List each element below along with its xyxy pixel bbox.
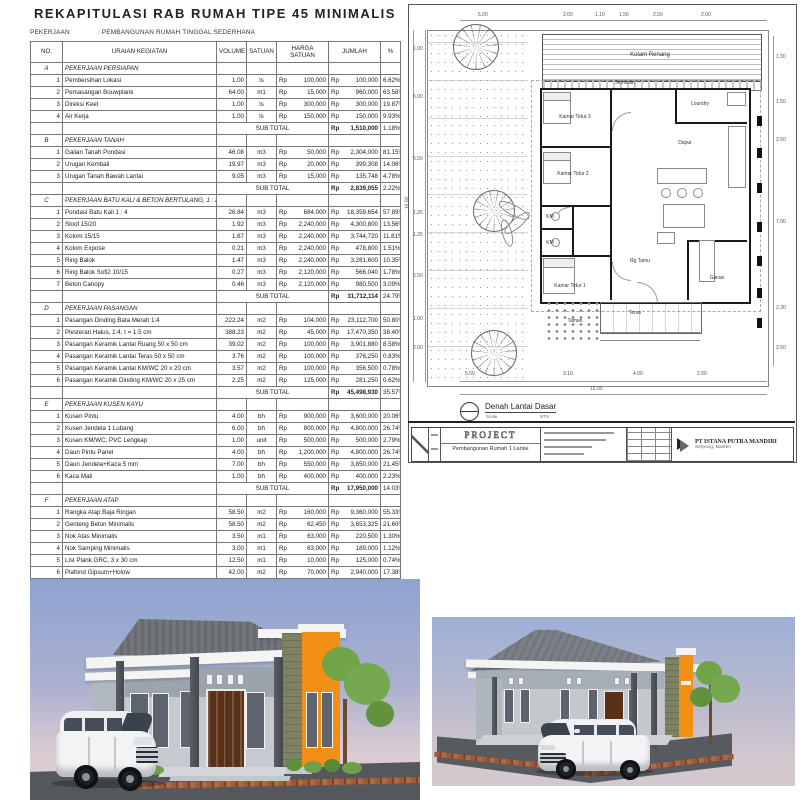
- table-cell: Rp2,240,000: [277, 231, 329, 243]
- table-cell: 7: [31, 279, 63, 291]
- item-row: 6Plafond Gipsum+Holow42.00m2Rp70,000Rp2,…: [31, 567, 401, 579]
- van-door-seam: [610, 741, 612, 769]
- table-cell: [63, 123, 217, 135]
- table-cell: 2: [31, 87, 63, 99]
- interior-wall: [687, 240, 689, 300]
- porch-column: [492, 677, 497, 737]
- table-cell: PEKERJAAN PERSIAPAN: [63, 63, 217, 75]
- table-cell: 1: [31, 315, 63, 327]
- interior-wall: [675, 122, 747, 124]
- table-cell: Rp500,000: [329, 435, 381, 447]
- item-row: 7Beton Canopy0.46m3Rp2,120,000Rp980,5003…: [31, 279, 401, 291]
- table-cell: Pasangan Keramik Lantai KM/WC 20 x 20 cm: [63, 363, 217, 375]
- interior-wall: [540, 228, 573, 230]
- table-cell: Kolom Expose: [63, 243, 217, 255]
- table-cell: SUB TOTAL: [217, 123, 329, 135]
- table-cell: [247, 195, 277, 207]
- table-cell: Rp100,000: [329, 75, 381, 87]
- column-header: VOLUME: [217, 42, 247, 63]
- item-row: 5Ring Balok1.47m3Rp2,240,000Rp3,281,6001…: [31, 255, 401, 267]
- table-cell: 3.76: [217, 351, 247, 363]
- dimension-label: 2.00: [563, 12, 573, 18]
- table-cell: 26.84: [217, 207, 247, 219]
- table-cell: bh: [247, 459, 277, 471]
- pekerjaan-value: : PEMBANGUNAN RUMAH TINGGAL SEDERHANA: [98, 29, 255, 36]
- table-cell: Plafond Gipsum+Holow: [63, 567, 217, 579]
- porch-column: [274, 657, 283, 771]
- project-title: PROJECT: [441, 430, 540, 440]
- table-cell: [31, 387, 63, 399]
- item-row: 3Nok Atas Minimalis3.50m1Rp63,000Rp220,5…: [31, 531, 401, 543]
- shrub: [304, 761, 322, 773]
- table-cell: 81.15%: [381, 147, 401, 159]
- dimension-line: [773, 36, 774, 366]
- page-title: REKAPITULASI RAB RUMAH TIPE 45 MINIMALIS: [30, 6, 400, 21]
- table-cell: D: [31, 303, 63, 315]
- table-cell: [63, 183, 217, 195]
- table-cell: 5: [31, 255, 63, 267]
- subtotal-row: SUB TOTALRp45,498,93035.57%: [31, 387, 401, 399]
- tree-foliage: [710, 675, 740, 703]
- table-cell: 1.78%: [381, 267, 401, 279]
- table-cell: [217, 303, 247, 315]
- item-row: 2Genteng Beton Minimalis58.50m2Rp62,450R…: [31, 519, 401, 531]
- armchair-symbol: [657, 232, 675, 244]
- section-header-row: EPEKERJAAN KUSEN KAYU: [31, 399, 401, 411]
- table-cell: Rp4,800,000: [329, 423, 381, 435]
- table-cell: 58.50: [217, 507, 247, 519]
- tower-cap: [676, 648, 696, 655]
- item-row: 5List Plank GRC, 3 x 30 cm12.50m1Rp10,00…: [31, 555, 401, 567]
- table-cell: [63, 483, 217, 495]
- table-cell: [381, 195, 401, 207]
- dimension-label: 2.30: [776, 305, 786, 311]
- table-cell: Rp478,800: [329, 243, 381, 255]
- table-cell: 57.89%: [381, 207, 401, 219]
- table-cell: m2: [247, 567, 277, 579]
- titleblock-info: [541, 428, 627, 461]
- table-cell: Rp2,240,000: [277, 243, 329, 255]
- dimension-line: [460, 20, 767, 21]
- item-row: 3Urugan Tanah Bawah Lantai9.05m3Rp15,000…: [31, 171, 401, 183]
- table-cell: 2: [31, 219, 63, 231]
- van-grille: [136, 747, 158, 763]
- table-cell: [217, 399, 247, 411]
- table-cell: 4: [31, 543, 63, 555]
- table-cell: Rp23,112,700: [329, 315, 381, 327]
- transom-window: [614, 677, 620, 685]
- tower-window: [321, 692, 333, 748]
- table-cell: m3: [247, 219, 277, 231]
- dimension-label: 1.10: [595, 12, 605, 18]
- table-cell: 24.79%: [381, 291, 401, 303]
- room-label-kolam-renang: Kolam Renang: [600, 52, 700, 58]
- table-cell: 3: [31, 531, 63, 543]
- window: [504, 689, 514, 723]
- total-height-dim: 16.00: [404, 197, 410, 210]
- titleblock-revisions: [627, 428, 672, 461]
- table-cell: [277, 135, 329, 147]
- table-cell: [31, 291, 63, 303]
- transom-window: [216, 674, 223, 685]
- table-cell: [247, 63, 277, 75]
- dimension-label: 1.25: [413, 210, 423, 216]
- table-cell: Rp104,000: [277, 315, 329, 327]
- table-cell: m3: [247, 231, 277, 243]
- table-cell: Rp3,653,325: [329, 519, 381, 531]
- van-headlight: [133, 737, 154, 745]
- table-cell: Pondasi Batu Kali 1 : 4: [63, 207, 217, 219]
- room-label-jemuran: Jemuran: [600, 80, 650, 86]
- tree-foliage: [344, 663, 390, 705]
- section-header-row: CPEKERJAAN BATU KALI & BETON BERTULANG, …: [31, 195, 401, 207]
- column-header: SATUAN: [247, 42, 277, 63]
- item-row: 1Rangka Atap Baja Ringan58.50m2Rp160,000…: [31, 507, 401, 519]
- table-cell: Nok Atas Minimalis: [63, 531, 217, 543]
- table-cell: unit: [247, 435, 277, 447]
- table-cell: Rp300,000: [329, 99, 381, 111]
- table-cell: [247, 303, 277, 315]
- dimension-label: 7.00: [776, 219, 786, 225]
- stool-symbol: [661, 188, 671, 198]
- table-cell: 35.57%: [381, 387, 401, 399]
- item-row: 2Kusen Jendela 1 Lubang6.00bhRp800,000Rp…: [31, 423, 401, 435]
- table-cell: Rp3,850,000: [329, 459, 381, 471]
- dimension-label: 4.00: [633, 371, 643, 377]
- van-door-seam: [582, 741, 584, 769]
- dimension-label: 1.00: [413, 46, 423, 52]
- table-cell: bh: [247, 411, 277, 423]
- table-cell: [277, 63, 329, 75]
- room-label-taman: Taman: [550, 318, 600, 324]
- dimension-label: 2.00: [413, 345, 423, 351]
- table-cell: 3: [31, 231, 63, 243]
- tree-symbol: [453, 24, 499, 70]
- table-cell: [329, 135, 381, 147]
- item-row: 3Kolom 15/151.67m3Rp2,240,000Rp3,744,720…: [31, 231, 401, 243]
- table-cell: Rp125,000: [277, 375, 329, 387]
- tower-cap: [298, 624, 344, 632]
- table-cell: Rp2,120,000: [277, 279, 329, 291]
- dimension-label: 3.10: [563, 371, 573, 377]
- room-label-teras: Teras: [610, 310, 660, 316]
- table-cell: m3: [247, 207, 277, 219]
- table-cell: Rp50,000: [277, 147, 329, 159]
- item-row: 5Pasangan Keramik Lantai KM/WC 20 x 20 c…: [31, 363, 401, 375]
- table-cell: Rp3,600,000: [329, 411, 381, 423]
- section-header-row: DPEKERJAAN PASANGAN: [31, 303, 401, 315]
- table-cell: Rp45,498,930: [329, 387, 381, 399]
- room-label-kamar-tidur-3: Kamar Tidur 3: [540, 114, 610, 120]
- titleblock-company: PT ISTANA PUTRA MANDIRI Serpong, Banten: [672, 428, 793, 461]
- shrub: [324, 759, 340, 772]
- transom-window: [576, 677, 582, 685]
- table-cell: 1: [31, 75, 63, 87]
- table-cell: 5: [31, 555, 63, 567]
- pier-marker: [757, 148, 762, 158]
- van-shadow: [52, 779, 164, 788]
- table-cell: Rp2,240,000: [277, 255, 329, 267]
- table-cell: Rp100,000: [277, 75, 329, 87]
- table-cell: 3: [31, 435, 63, 447]
- table-cell: [217, 135, 247, 147]
- table-cell: Daun Jendela+Kaca 5 mm: [63, 459, 217, 471]
- transom-window: [206, 674, 213, 685]
- porch-steps: [600, 332, 700, 341]
- table-cell: ls: [247, 75, 277, 87]
- table-cell: 6: [31, 471, 63, 483]
- table-cell: Rp3,744,720: [329, 231, 381, 243]
- table-cell: Rp18,359,654: [329, 207, 381, 219]
- dimension-label: 5.00: [413, 94, 423, 100]
- table-cell: m1: [247, 531, 277, 543]
- item-row: 6Ring Balok Sofi2 10/150.27m3Rp2,120,000…: [31, 267, 401, 279]
- table-cell: 3.09%: [381, 279, 401, 291]
- table-cell: bh: [247, 447, 277, 459]
- table-cell: [63, 291, 217, 303]
- table-cell: E: [31, 399, 63, 411]
- table-cell: Rp150,000: [277, 111, 329, 123]
- dimension-line: [460, 381, 767, 382]
- dimension-label: 1.50: [619, 12, 629, 18]
- table-cell: 64.00: [217, 87, 247, 99]
- table-cell: Pemasangan Bouwplank: [63, 87, 217, 99]
- item-row: 4Nok Samping Minimalis3.00m1Rp63,000Rp18…: [31, 543, 401, 555]
- table-cell: Beton Canopy: [63, 279, 217, 291]
- item-row: 4Air Kerja1.00lsRp150,000Rp150,0009.93%: [31, 111, 401, 123]
- interior-wall: [687, 240, 747, 242]
- table-cell: 1: [31, 411, 63, 423]
- table-cell: Rp566,040: [329, 267, 381, 279]
- table-cell: m3: [247, 243, 277, 255]
- table-cell: 5: [31, 363, 63, 375]
- van-wheel-hub: [126, 775, 134, 783]
- table-cell: 1: [31, 147, 63, 159]
- table-cell: m2: [247, 519, 277, 531]
- subtotal-row: SUB TOTALRp2,839,0552.22%: [31, 183, 401, 195]
- table-cell: 2: [31, 519, 63, 531]
- table-cell: Rp281,250: [329, 375, 381, 387]
- table-cell: 0.83%: [381, 351, 401, 363]
- room-label-km: KM: [541, 240, 559, 246]
- table-cell: 1.18%: [381, 123, 401, 135]
- table-cell: Rp100,000: [277, 339, 329, 351]
- table-cell: 1: [31, 507, 63, 519]
- column-header: JUMLAH: [329, 42, 381, 63]
- table-cell: Rp15,000: [277, 87, 329, 99]
- table-cell: Rp1,200,000: [277, 447, 329, 459]
- table-cell: 26.74%: [381, 447, 401, 459]
- item-row: 5Daun Jendela+Kaca 5 mm7.00bhRp550,000Rp…: [31, 459, 401, 471]
- room-label-rg-tamu: Rg Tamu: [615, 258, 665, 264]
- column-header: HARGA SATUAN: [277, 42, 329, 63]
- table-cell: [217, 195, 247, 207]
- table-cell: Rp125,000: [329, 555, 381, 567]
- table-cell: [329, 63, 381, 75]
- table-cell: 1.00: [217, 75, 247, 87]
- section-header-row: APEKERJAAN PERSIAPAN: [31, 63, 401, 75]
- dimension-label: 1.30: [776, 54, 786, 60]
- table-cell: 19.97: [217, 159, 247, 171]
- subtotal-row: SUB TOTALRp17,950,00014.03%: [31, 483, 401, 495]
- table-cell: 12.50: [217, 555, 247, 567]
- table-cell: [329, 399, 381, 411]
- total-width-dim: 15.00: [590, 386, 603, 392]
- item-row: 1Pondasi Batu Kali 1 : 426.84m3Rp684,000…: [31, 207, 401, 219]
- table-cell: Rp376,250: [329, 351, 381, 363]
- table-cell: 6.00: [217, 423, 247, 435]
- table-cell: [247, 399, 277, 411]
- dimension-line: [460, 394, 767, 395]
- item-row: 1Pembersihan Lokasi1.00lsRp100,000Rp100,…: [31, 75, 401, 87]
- rab-table: NO.URAIAN KEGIATANVOLUMESATUANHARGA SATU…: [30, 41, 401, 603]
- table-cell: m3: [247, 171, 277, 183]
- table-cell: Pasangan Keramik Lantai Ruang 50 x 50 cm: [63, 339, 217, 351]
- table-cell: [277, 495, 329, 507]
- table-cell: SUB TOTAL: [217, 387, 329, 399]
- table-cell: Rp100,000: [277, 363, 329, 375]
- table-cell: Rp31,712,114: [329, 291, 381, 303]
- table-cell: Rp100,000: [277, 351, 329, 363]
- company-location: Serpong, Banten: [695, 445, 777, 450]
- table-cell: Rp135,748: [329, 171, 381, 183]
- item-row: 4Kolom Expose0.21m3Rp2,240,000Rp478,8001…: [31, 243, 401, 255]
- table-cell: 4: [31, 351, 63, 363]
- table-cell: m3: [247, 159, 277, 171]
- table-cell: 14.06%: [381, 159, 401, 171]
- table-cell: m1: [247, 543, 277, 555]
- table-cell: 3.50: [217, 531, 247, 543]
- table-cell: Rp63,000: [277, 543, 329, 555]
- table-cell: m3: [247, 267, 277, 279]
- table-cell: [381, 495, 401, 507]
- table-cell: PEKERJAAN KUSEN KAYU: [63, 399, 217, 411]
- interior-wall: [572, 205, 574, 257]
- table-cell: 4: [31, 111, 63, 123]
- table-cell: [277, 303, 329, 315]
- table-cell: 0.46: [217, 279, 247, 291]
- interior-wall: [540, 146, 612, 148]
- subtotal-row: SUB TOTALRp1,510,0001.18%: [31, 123, 401, 135]
- titleblock-project: PROJECT Pembangunan Rumah 1 Lantai: [441, 428, 541, 461]
- table-cell: Rp4,800,000: [329, 447, 381, 459]
- dimension-label: 1.50: [776, 99, 786, 105]
- render-front-left: [30, 579, 420, 800]
- table-cell: 1.12%: [381, 543, 401, 555]
- table-cell: C: [31, 195, 63, 207]
- table-cell: m2: [247, 339, 277, 351]
- porch-step: [169, 776, 291, 781]
- table-cell: 58.50: [217, 519, 247, 531]
- transom-window: [508, 677, 514, 685]
- table-cell: SUB TOTAL: [217, 483, 329, 495]
- item-row: 3Pasangan Keramik Lantai Ruang 50 x 50 c…: [31, 339, 401, 351]
- table-cell: ls: [247, 111, 277, 123]
- table-cell: m3: [247, 147, 277, 159]
- table-cell: Rp15,000: [277, 171, 329, 183]
- item-row: 2Urugan Kembali19.97m3Rp20,000Rp399,3081…: [31, 159, 401, 171]
- column-header: NO.: [31, 42, 63, 63]
- table-cell: m1: [247, 555, 277, 567]
- dimension-label: 5.50: [413, 156, 423, 162]
- window: [560, 689, 570, 723]
- scale-value: NTS: [540, 414, 549, 419]
- table-cell: Sloof 15/20: [63, 219, 217, 231]
- table-cell: Rp399,308: [329, 159, 381, 171]
- table-cell: 9.93%: [381, 111, 401, 123]
- table-cell: Rp356,500: [329, 363, 381, 375]
- table-cell: [277, 399, 329, 411]
- front-door: [206, 689, 246, 776]
- table-cell: Kolom 15/15: [63, 231, 217, 243]
- item-row: 2Sloof 15/201.92m3Rp2,240,000Rp4,300,800…: [31, 219, 401, 231]
- company-logo-icon: [677, 438, 691, 452]
- item-row: 1Kusen Pintu4.00bhRp900,000Rp3,600,00020…: [31, 411, 401, 423]
- table-cell: Rp4,300,800: [329, 219, 381, 231]
- table-cell: m2: [247, 315, 277, 327]
- table-cell: Rp300,000: [277, 99, 329, 111]
- table-cell: Rp2,304,000: [329, 147, 381, 159]
- shrub: [342, 762, 362, 774]
- stool-symbol: [677, 188, 687, 198]
- rab-table-body: APEKERJAAN PERSIAPAN1Pembersihan Lokasi1…: [31, 63, 401, 603]
- table-cell: 2.23%: [381, 471, 401, 483]
- table-cell: 55.33%: [381, 507, 401, 519]
- table-cell: Genteng Beton Minimalis: [63, 519, 217, 531]
- table-cell: 10.35%: [381, 255, 401, 267]
- drawing-title: Denah Lantai Dasar: [485, 402, 556, 413]
- table-cell: Rp684,000: [277, 207, 329, 219]
- table-cell: 3: [31, 171, 63, 183]
- table-cell: 38.40%: [381, 327, 401, 339]
- table-cell: Nok Samping Minimalis: [63, 543, 217, 555]
- table-cell: Rp70,000: [277, 567, 329, 579]
- table-cell: 1.00: [217, 111, 247, 123]
- room-label-loundry: Loundry: [675, 101, 725, 107]
- table-cell: [329, 195, 381, 207]
- room-label-garasi: Garasi: [692, 275, 742, 281]
- table-cell: Direksi Keet: [63, 99, 217, 111]
- dimension-label: 1.00: [413, 316, 423, 322]
- table-cell: 388.23: [217, 327, 247, 339]
- table-cell: Kusen Jendela 1 Lubang: [63, 423, 217, 435]
- dimension-label: 1.25: [413, 232, 423, 238]
- shrub: [286, 759, 302, 771]
- table-cell: [31, 183, 63, 195]
- interior-wall: [540, 255, 612, 257]
- dimension-line: [413, 30, 414, 382]
- table-cell: Kusen KM/WC, PVC Lengkap: [63, 435, 217, 447]
- porch-column: [190, 657, 199, 771]
- table-cell: 1.47: [217, 255, 247, 267]
- table-cell: Daun Pintu Panel: [63, 447, 217, 459]
- table-cell: 21.60%: [381, 519, 401, 531]
- table-cell: [247, 495, 277, 507]
- table-cell: Rangka Atap Baja Ringan: [63, 507, 217, 519]
- titleblock-sheet-strip: [429, 428, 441, 461]
- dimension-label: 5.00: [465, 371, 475, 377]
- room-label-km: KM: [541, 214, 559, 220]
- transom-window: [227, 674, 234, 685]
- table-cell: [217, 495, 247, 507]
- stone-panel: [665, 657, 679, 737]
- bed-pillow: [543, 92, 571, 101]
- pier-marker: [757, 288, 762, 298]
- kitchen-island: [657, 168, 707, 184]
- table-cell: Rp63,000: [277, 531, 329, 543]
- item-row: 3Direksi Keet1.00lsRp300,000Rp300,00019.…: [31, 99, 401, 111]
- table-cell: A: [31, 63, 63, 75]
